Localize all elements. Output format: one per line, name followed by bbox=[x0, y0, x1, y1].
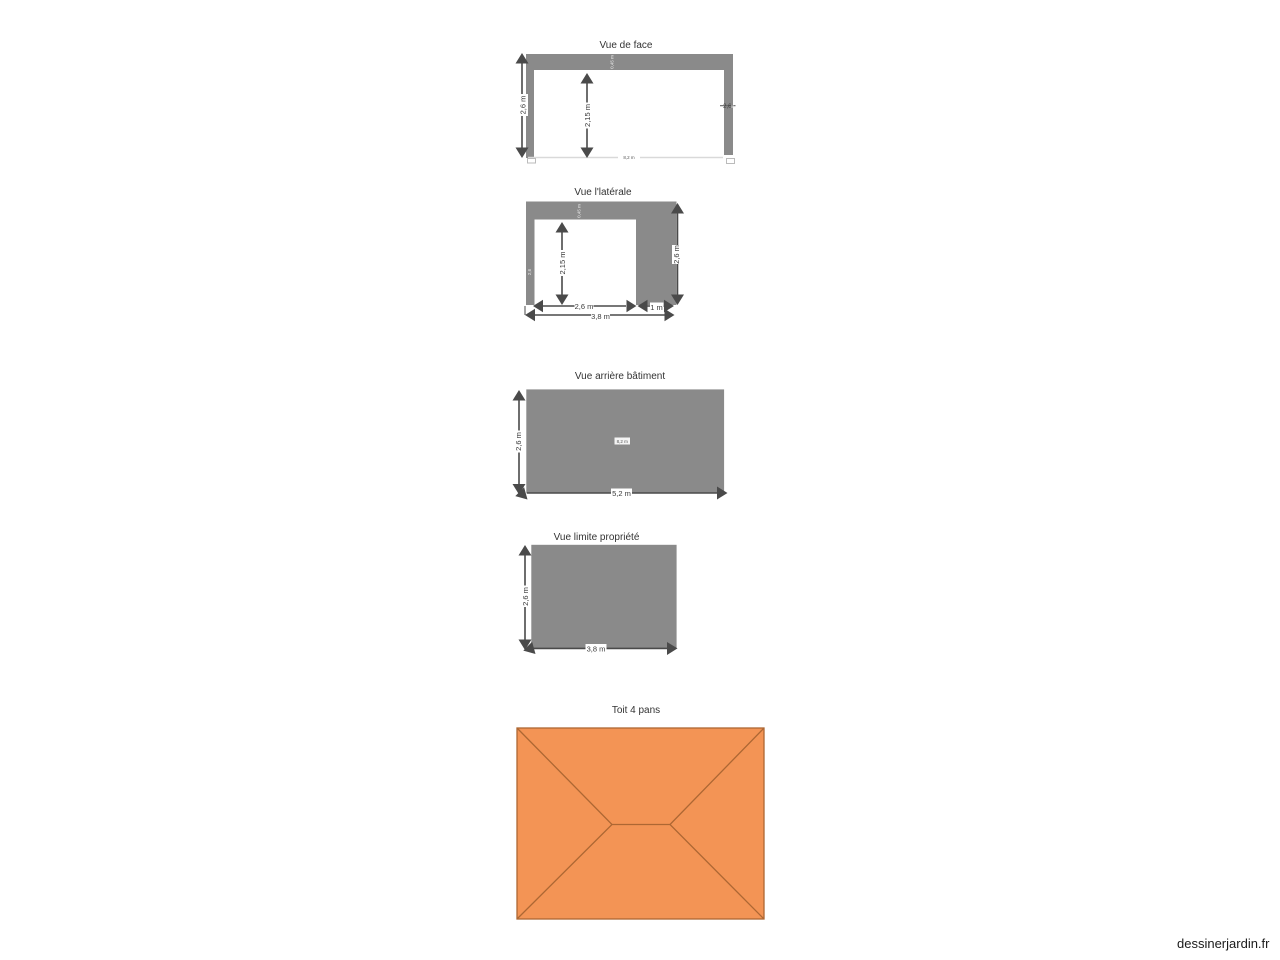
svg-text:5,2 m: 5,2 m bbox=[612, 489, 631, 498]
svg-text:1 m: 1 m bbox=[650, 303, 663, 312]
svg-text:3,8 m: 3,8 m bbox=[591, 312, 610, 321]
svg-text:2,6 m: 2,6 m bbox=[514, 432, 523, 451]
svg-text:2,6 m: 2,6 m bbox=[521, 587, 530, 606]
svg-text:m: m bbox=[731, 104, 735, 109]
svg-text:dessinerjardin.fr: dessinerjardin.fr bbox=[1177, 936, 1270, 951]
svg-text:Vue de face: Vue de face bbox=[599, 40, 652, 51]
svg-text:Vue limite propriété: Vue limite propriété bbox=[554, 532, 640, 543]
svg-text:2,15 m: 2,15 m bbox=[558, 252, 567, 275]
svg-text:2,6 m: 2,6 m bbox=[575, 302, 594, 311]
svg-text:2,15 m: 2,15 m bbox=[583, 104, 592, 127]
svg-text:Toit 4 pans: Toit 4 pans bbox=[612, 705, 660, 716]
svg-text:0,45 m: 0,45 m bbox=[577, 204, 582, 218]
svg-text:8,2 m: 8,2 m bbox=[617, 439, 629, 444]
svg-text:0,45 m: 0,45 m bbox=[610, 55, 615, 69]
svg-text:Vue arrière bâtiment: Vue arrière bâtiment bbox=[575, 371, 665, 382]
svg-text:2,6 m: 2,6 m bbox=[672, 245, 681, 264]
svg-text:3,8 m: 3,8 m bbox=[587, 645, 606, 654]
svg-text:2,6: 2,6 bbox=[527, 268, 532, 275]
svg-text:2,6 m: 2,6 m bbox=[519, 96, 528, 115]
svg-text:Vue l'latérale: Vue l'latérale bbox=[574, 187, 632, 198]
svg-text:8,2 m: 8,2 m bbox=[623, 155, 635, 160]
